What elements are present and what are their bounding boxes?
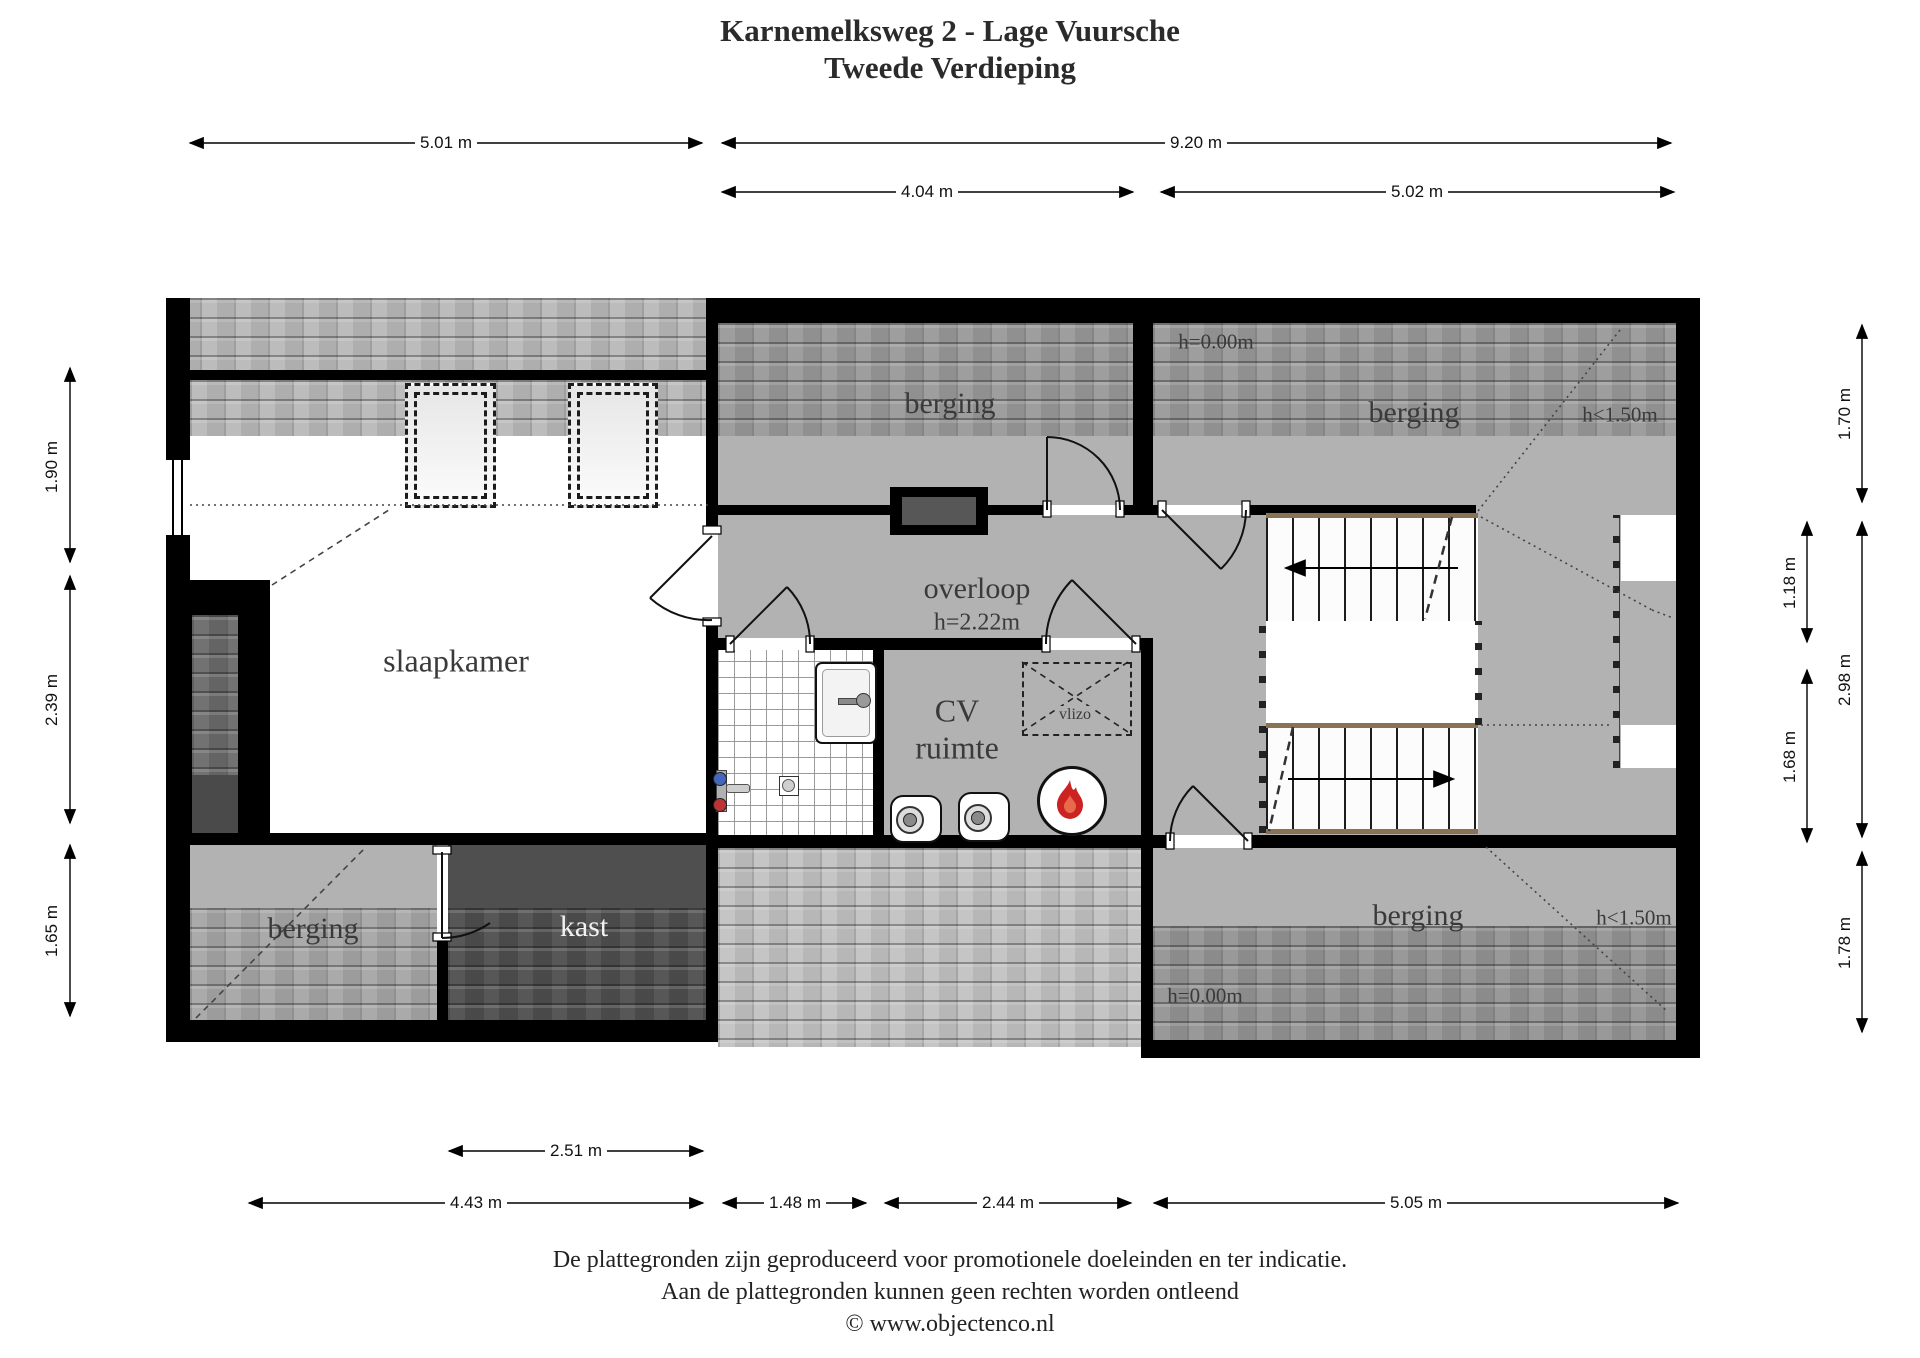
dim-4-04: 4.04 m [896,182,958,202]
door-berging-middle [1047,437,1120,510]
label-kast: kast [560,910,608,944]
label-berging-bottom-left: berging [267,912,358,946]
label-slaapkamer: slaapkamer [383,643,529,680]
dim-1-70: 1.70 m [1835,383,1855,445]
label-cv-line2: ruimte [915,730,999,767]
floorplan-page: Karnemelksweg 2 - Lage Vuursche Tweede V… [0,0,1920,1358]
dim-9-20: 9.20 m [1165,133,1227,153]
label-h150-top: h<1.50m [1582,403,1657,428]
door-berging-right [1162,510,1246,569]
label-berging-top-middle: berging [904,387,995,421]
door-cv [1046,580,1136,644]
disclaimer-line2: Aan de plattegronden kunnen geen rechten… [0,1276,1900,1308]
door-slaapkamer [650,536,712,620]
dim-1-48: 1.48 m [764,1193,826,1213]
label-h150-bottom: h<1.50m [1596,906,1671,931]
dim-5-05: 5.05 m [1385,1193,1447,1213]
door-jambs [433,501,1252,941]
dim-1-68: 1.68 m [1780,726,1800,788]
floorplan: slaapkamer overloop h=2.22m CV ruimte vl… [0,0,1920,1358]
door-shower [730,587,810,644]
dim-1-65: 1.65 m [42,900,62,962]
label-berging-bottom-right: berging [1372,899,1463,933]
dim-2-44: 2.44 m [977,1193,1039,1213]
dim-5-01: 5.01 m [415,133,477,153]
dim-5-02: 5.02 m [1386,182,1448,202]
dim-2-98: 2.98 m [1835,649,1855,711]
dim-4-43: 4.43 m [445,1193,507,1213]
label-h000-top: h=0.00m [1178,330,1253,355]
dim-1-18: 1.18 m [1780,552,1800,614]
door-swings [442,437,1248,938]
plan-linework [0,0,1920,1358]
stair-arrows [1269,517,1458,831]
dim-1-90: 1.90 m [42,436,62,498]
label-berging-top-right: berging [1368,396,1459,430]
dim-1-78: 1.78 m [1835,912,1855,974]
door-openings [437,505,1248,937]
label-vlizo: vlizo [1056,706,1094,724]
dim-2-39: 2.39 m [42,669,62,731]
copyright-line: © www.objectenco.nl [0,1308,1900,1340]
disclaimer-line1: De plattegronden zijn geproduceerd voor … [0,1244,1900,1276]
label-cv-line1: CV [935,693,979,730]
label-h000-bottom: h=0.00m [1167,984,1242,1009]
disclaimer: De plattegronden zijn geproduceerd voor … [0,1244,1900,1340]
dimension-lines [70,143,1862,1203]
label-overloop-height: h=2.22m [934,610,1020,637]
label-overloop: overloop [924,572,1031,606]
dim-2-51: 2.51 m [545,1141,607,1161]
door-berging-bottom-left [442,852,490,938]
door-berging-bottom-right [1170,786,1248,841]
flame-icon [1057,780,1083,819]
